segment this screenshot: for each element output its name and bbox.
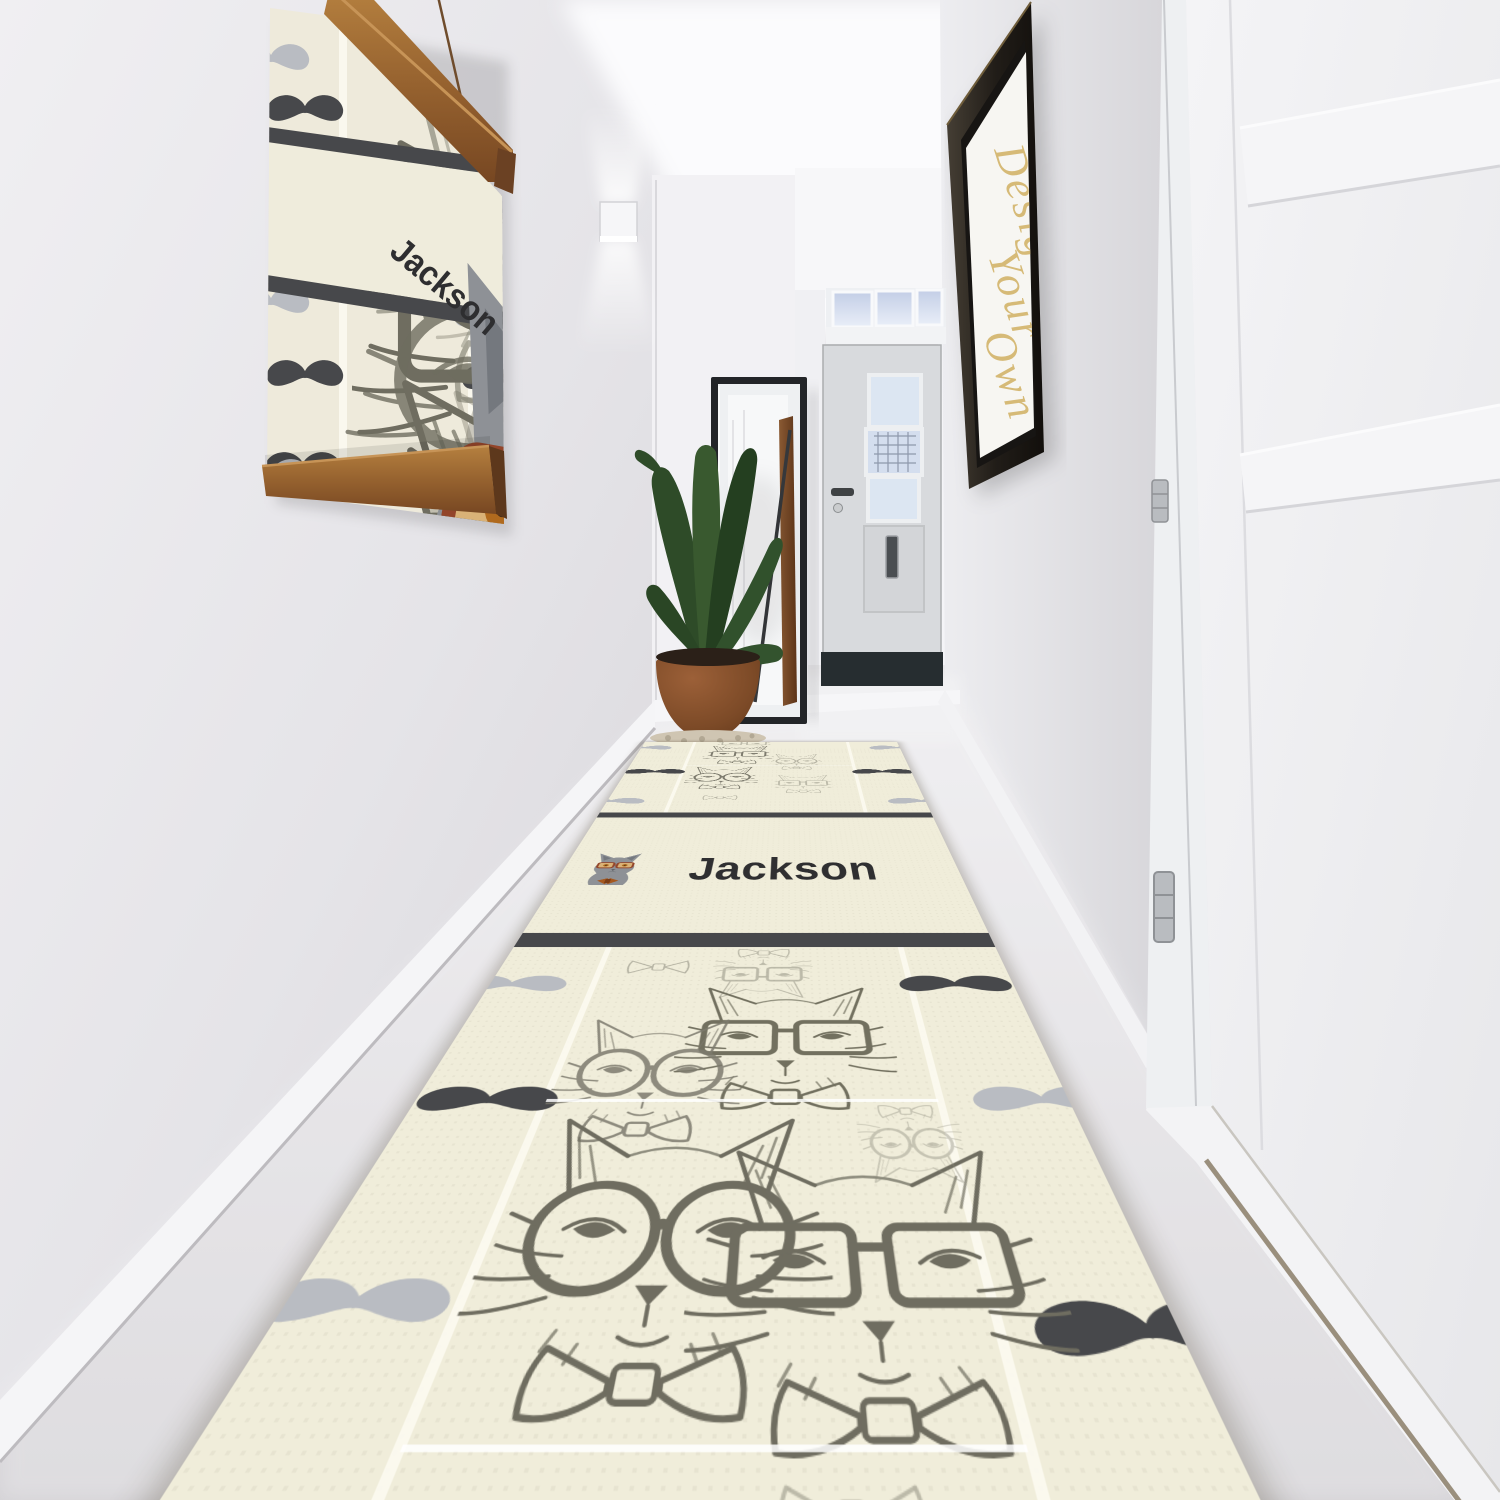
cat-sketch (771, 774, 836, 794)
door-hinge (1152, 480, 1168, 522)
tile-line (685, 765, 852, 766)
doormat (821, 652, 943, 686)
cat-sketch (680, 766, 759, 791)
bow-tie-doodle (766, 1463, 946, 1500)
transom-sill (826, 327, 946, 344)
door-glass-panel-top (869, 375, 921, 427)
cat-sketch (850, 1101, 983, 1188)
rug-stripe (597, 813, 933, 818)
sconce-cube (600, 202, 637, 241)
mustache-dark (850, 767, 917, 776)
front-door-assembly (821, 288, 946, 686)
mustache-dark (620, 767, 689, 776)
rug-name-text: Jackson (684, 852, 881, 888)
rug-separator (846, 742, 868, 813)
mail-slot (886, 536, 898, 578)
bow-tie-doodle (699, 794, 740, 802)
transom-pane (833, 292, 872, 327)
top-rail-endcap (494, 148, 516, 194)
rug-stripe (514, 933, 996, 947)
bow-tie-doodle (619, 956, 695, 978)
transom-pane (876, 291, 913, 326)
tile-line (400, 1445, 1028, 1453)
transom-pane (917, 290, 942, 325)
cat-sketch (700, 745, 774, 765)
sconce-lit-edge (600, 236, 637, 242)
pot-soil (656, 648, 760, 666)
cat-sketch (769, 753, 825, 770)
rug-name-row: Jackson (547, 846, 970, 894)
door-hinge (1154, 872, 1174, 942)
mustache-dark (893, 968, 1021, 999)
hallway-photo: Design Your Own (0, 0, 1500, 1500)
rug-cat-icon (577, 852, 647, 888)
door-glass-panel-bottom (868, 477, 919, 521)
door-handle (831, 488, 854, 496)
door-keyhole (834, 504, 843, 513)
